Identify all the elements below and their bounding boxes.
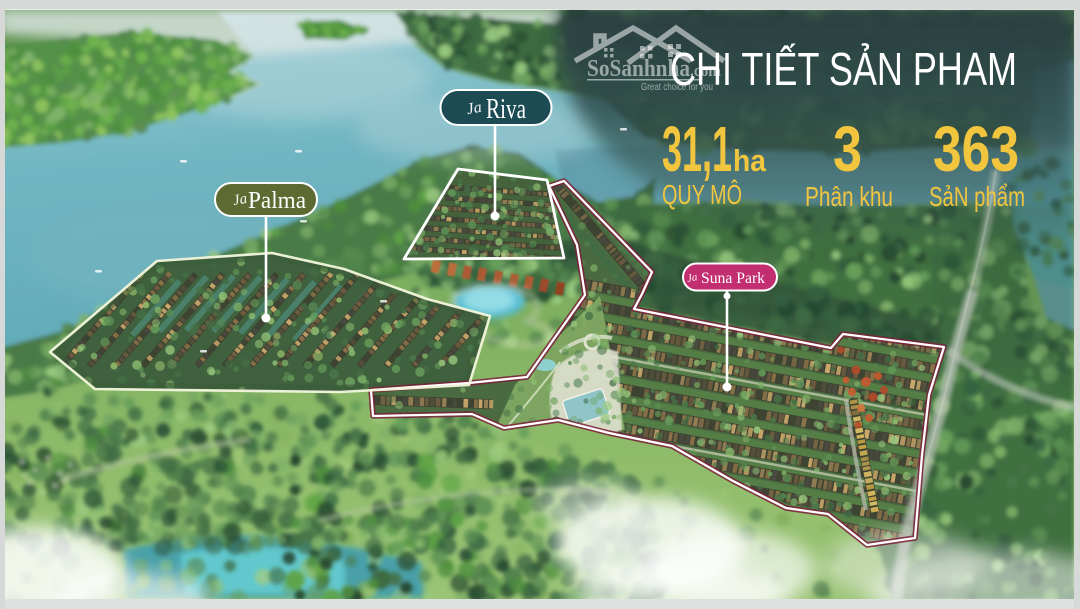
svg-text:363: 363 — [933, 113, 1019, 185]
svg-text:Ja: Ja — [232, 191, 249, 209]
svg-text:31,1: 31,1 — [662, 113, 732, 185]
svg-text:Ja: Ja — [465, 99, 483, 118]
svg-text:Suna Park: Suna Park — [701, 270, 765, 287]
svg-text:Phân khu: Phân khu — [805, 181, 893, 212]
svg-text:CHI TIẾT SẢN PHAM: CHI TIẾT SẢN PHAM — [670, 43, 1017, 95]
svg-text:ha: ha — [733, 143, 767, 178]
svg-text:Palma: Palma — [248, 188, 306, 214]
svg-text:Riva: Riva — [486, 94, 526, 125]
svg-text:QUY MÔ: QUY MÔ — [662, 179, 742, 210]
svg-text:3: 3 — [833, 113, 862, 185]
svg-text:SảN phẩm: SảN phẩm — [929, 181, 1025, 212]
